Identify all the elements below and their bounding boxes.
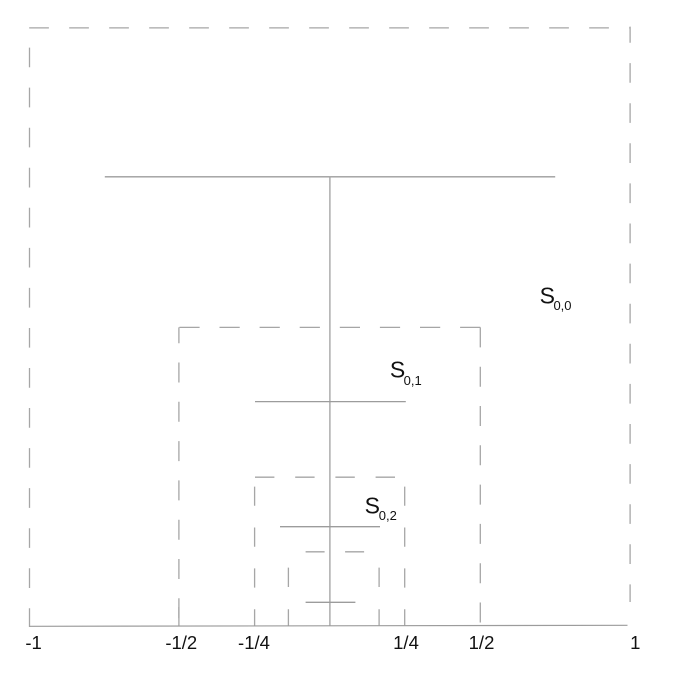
svg-text:1/2: 1/2 bbox=[469, 632, 495, 653]
svg-text:1/4: 1/4 bbox=[393, 632, 419, 653]
svg-text:-1: -1 bbox=[25, 632, 41, 653]
svg-text:1: 1 bbox=[630, 632, 640, 653]
svg-text:-1/2: -1/2 bbox=[165, 632, 197, 653]
svg-text:-1/4: -1/4 bbox=[238, 632, 270, 653]
